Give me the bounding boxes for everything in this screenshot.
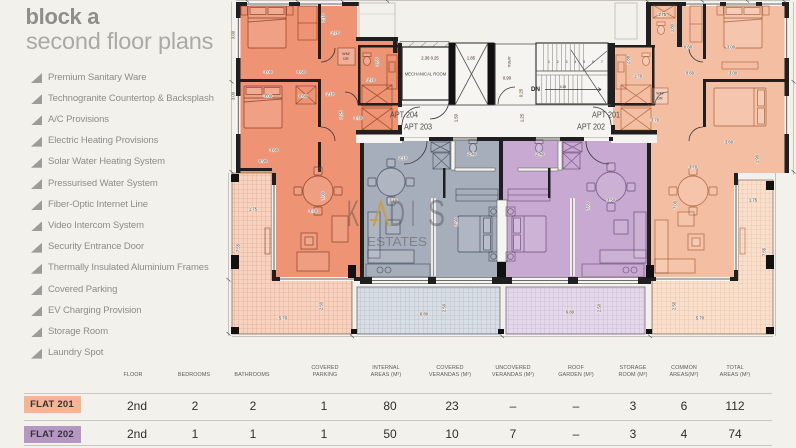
svg-text:D: D [389, 193, 405, 234]
svg-text:2.40: 2.40 [468, 152, 477, 157]
svg-text:7.00: 7.00 [321, 191, 326, 200]
svg-text:0.60: 0.60 [297, 70, 306, 75]
svg-text:2.10: 2.10 [399, 156, 408, 161]
svg-text:6.80: 6.80 [566, 310, 575, 315]
svg-text:3.70: 3.70 [354, 116, 363, 121]
svg-text:2.88: 2.88 [626, 55, 631, 64]
svg-text:I: I [411, 193, 415, 234]
svg-text:0.90: 0.90 [259, 159, 268, 164]
svg-text:APT 204: APT 204 [390, 111, 418, 120]
svg-text:6.80: 6.80 [420, 312, 429, 317]
svg-text:WM/: WM/ [656, 92, 663, 96]
svg-text:1.80: 1.80 [670, 23, 675, 32]
svg-text:1.75: 1.75 [331, 31, 340, 36]
svg-text:DR: DR [657, 97, 663, 101]
svg-text:1.70: 1.70 [367, 78, 376, 83]
svg-text:2.36 0.25: 2.36 0.25 [421, 56, 439, 61]
svg-text:5.70: 5.70 [696, 316, 705, 321]
svg-text:1.75: 1.75 [749, 198, 758, 203]
svg-text:3.70: 3.70 [309, 209, 318, 214]
svg-text:3.70: 3.70 [689, 165, 698, 170]
svg-text:3.50: 3.50 [607, 198, 616, 203]
svg-text:1.90: 1.90 [755, 154, 760, 163]
svg-text:DN: DN [531, 86, 540, 93]
svg-text:1.70: 1.70 [634, 74, 643, 79]
svg-text:2.65: 2.65 [375, 57, 380, 66]
svg-text:S: S [428, 193, 445, 234]
svg-text:2.10: 2.10 [321, 13, 326, 22]
svg-text:APT 203: APT 203 [404, 123, 432, 132]
svg-text:1.75: 1.75 [249, 207, 258, 212]
svg-text:7.55: 7.55 [236, 243, 241, 252]
svg-text:1.25: 1.25 [520, 113, 525, 122]
svg-text:3.00: 3.00 [264, 70, 273, 75]
svg-text:1.85: 1.85 [467, 56, 476, 61]
svg-text:0.60: 0.60 [299, 94, 308, 99]
svg-text:3.00: 3.00 [264, 94, 273, 99]
svg-text:2.50: 2.50 [597, 303, 602, 312]
svg-text:APT 201: APT 201 [592, 111, 620, 120]
svg-text:0.60: 0.60 [684, 45, 693, 50]
svg-text:AREA: AREA [507, 57, 512, 68]
svg-text:2.50: 2.50 [672, 301, 677, 310]
svg-text:DR: DR [343, 57, 349, 61]
svg-text:0.90: 0.90 [503, 76, 512, 81]
svg-text:3.60: 3.60 [725, 140, 734, 145]
svg-text:2.50: 2.50 [442, 303, 447, 312]
svg-text:5.70: 5.70 [279, 316, 288, 321]
svg-text:6.35: 6.35 [560, 85, 566, 89]
svg-text:3.60: 3.60 [270, 148, 279, 153]
svg-text:7.00: 7.00 [673, 200, 678, 209]
svg-text:2.50: 2.50 [319, 301, 324, 310]
svg-text:K: K [347, 193, 359, 234]
svg-text:1 2 3 4 5 6 7 8: 1 2 3 4 5 6 7 8 [548, 60, 615, 64]
svg-text:1.75: 1.75 [658, 12, 667, 17]
svg-text:0.60: 0.60 [686, 71, 695, 76]
svg-text:0.25: 0.25 [519, 88, 524, 97]
svg-text:1.50: 1.50 [454, 113, 459, 122]
svg-text:ESTATES: ESTATES [367, 235, 427, 249]
svg-text:MECHANICAL ROOM: MECHANICAL ROOM [405, 72, 447, 77]
svg-text:2.40: 2.40 [536, 152, 545, 157]
svg-text:1.10: 1.10 [326, 92, 335, 97]
svg-text:3.00: 3.00 [727, 45, 736, 50]
svg-text:7.55: 7.55 [762, 247, 767, 256]
svg-text:2.90: 2.90 [454, 217, 459, 226]
svg-text:7.60: 7.60 [586, 201, 591, 210]
svg-text:WM/: WM/ [342, 52, 349, 56]
svg-text:3.70: 3.70 [651, 118, 660, 123]
svg-text:APT 202: APT 202 [577, 123, 605, 132]
svg-text:3.00: 3.00 [729, 71, 738, 76]
svg-text:1.25: 1.25 [339, 110, 344, 119]
